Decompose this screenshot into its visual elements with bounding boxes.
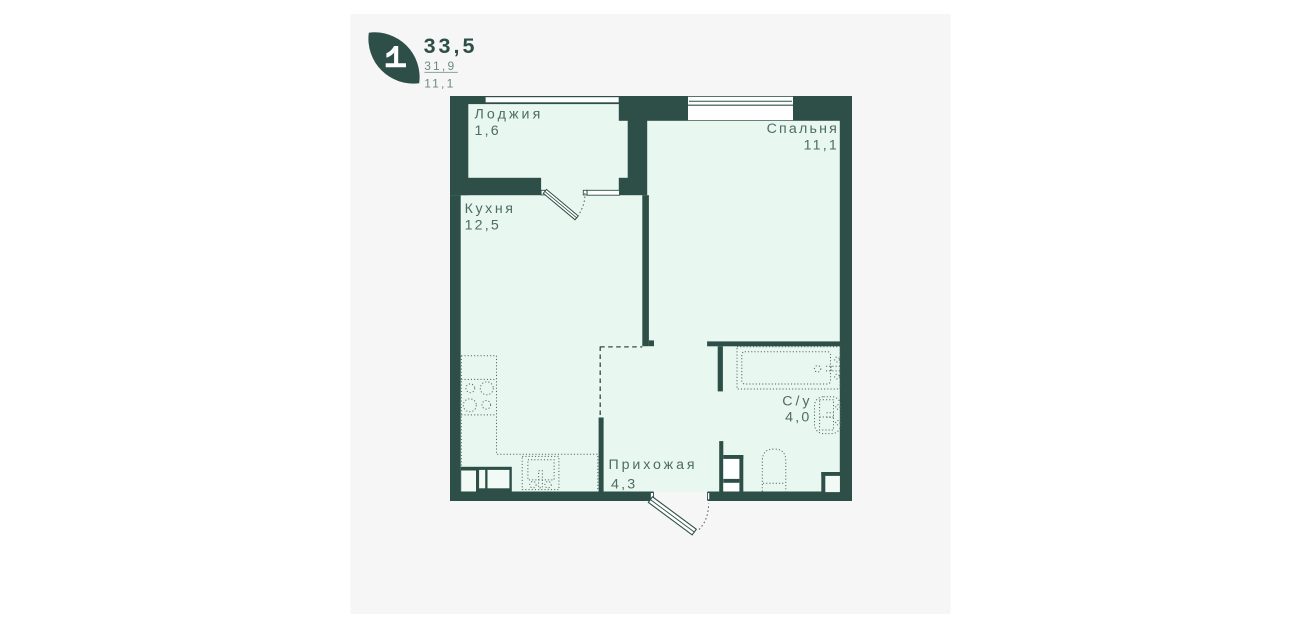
- svg-text:4,3: 4,3: [611, 477, 637, 493]
- svg-text:Лоджия: Лоджия: [475, 107, 544, 123]
- svg-text:Прихожая: Прихожая: [609, 457, 698, 473]
- svg-text:С/у: С/у: [782, 393, 812, 409]
- svg-text:12,5: 12,5: [465, 217, 501, 233]
- svg-text:4,0: 4,0: [785, 410, 811, 426]
- svg-text:Спальня: Спальня: [767, 121, 839, 137]
- svg-text:1,6: 1,6: [475, 123, 501, 139]
- svg-text:Кухня: Кухня: [465, 201, 516, 217]
- svg-text:31,9: 31,9: [424, 59, 456, 73]
- svg-text:11,1: 11,1: [424, 76, 455, 90]
- svg-text:11,1: 11,1: [804, 138, 839, 154]
- svg-text:33,5: 33,5: [424, 34, 478, 58]
